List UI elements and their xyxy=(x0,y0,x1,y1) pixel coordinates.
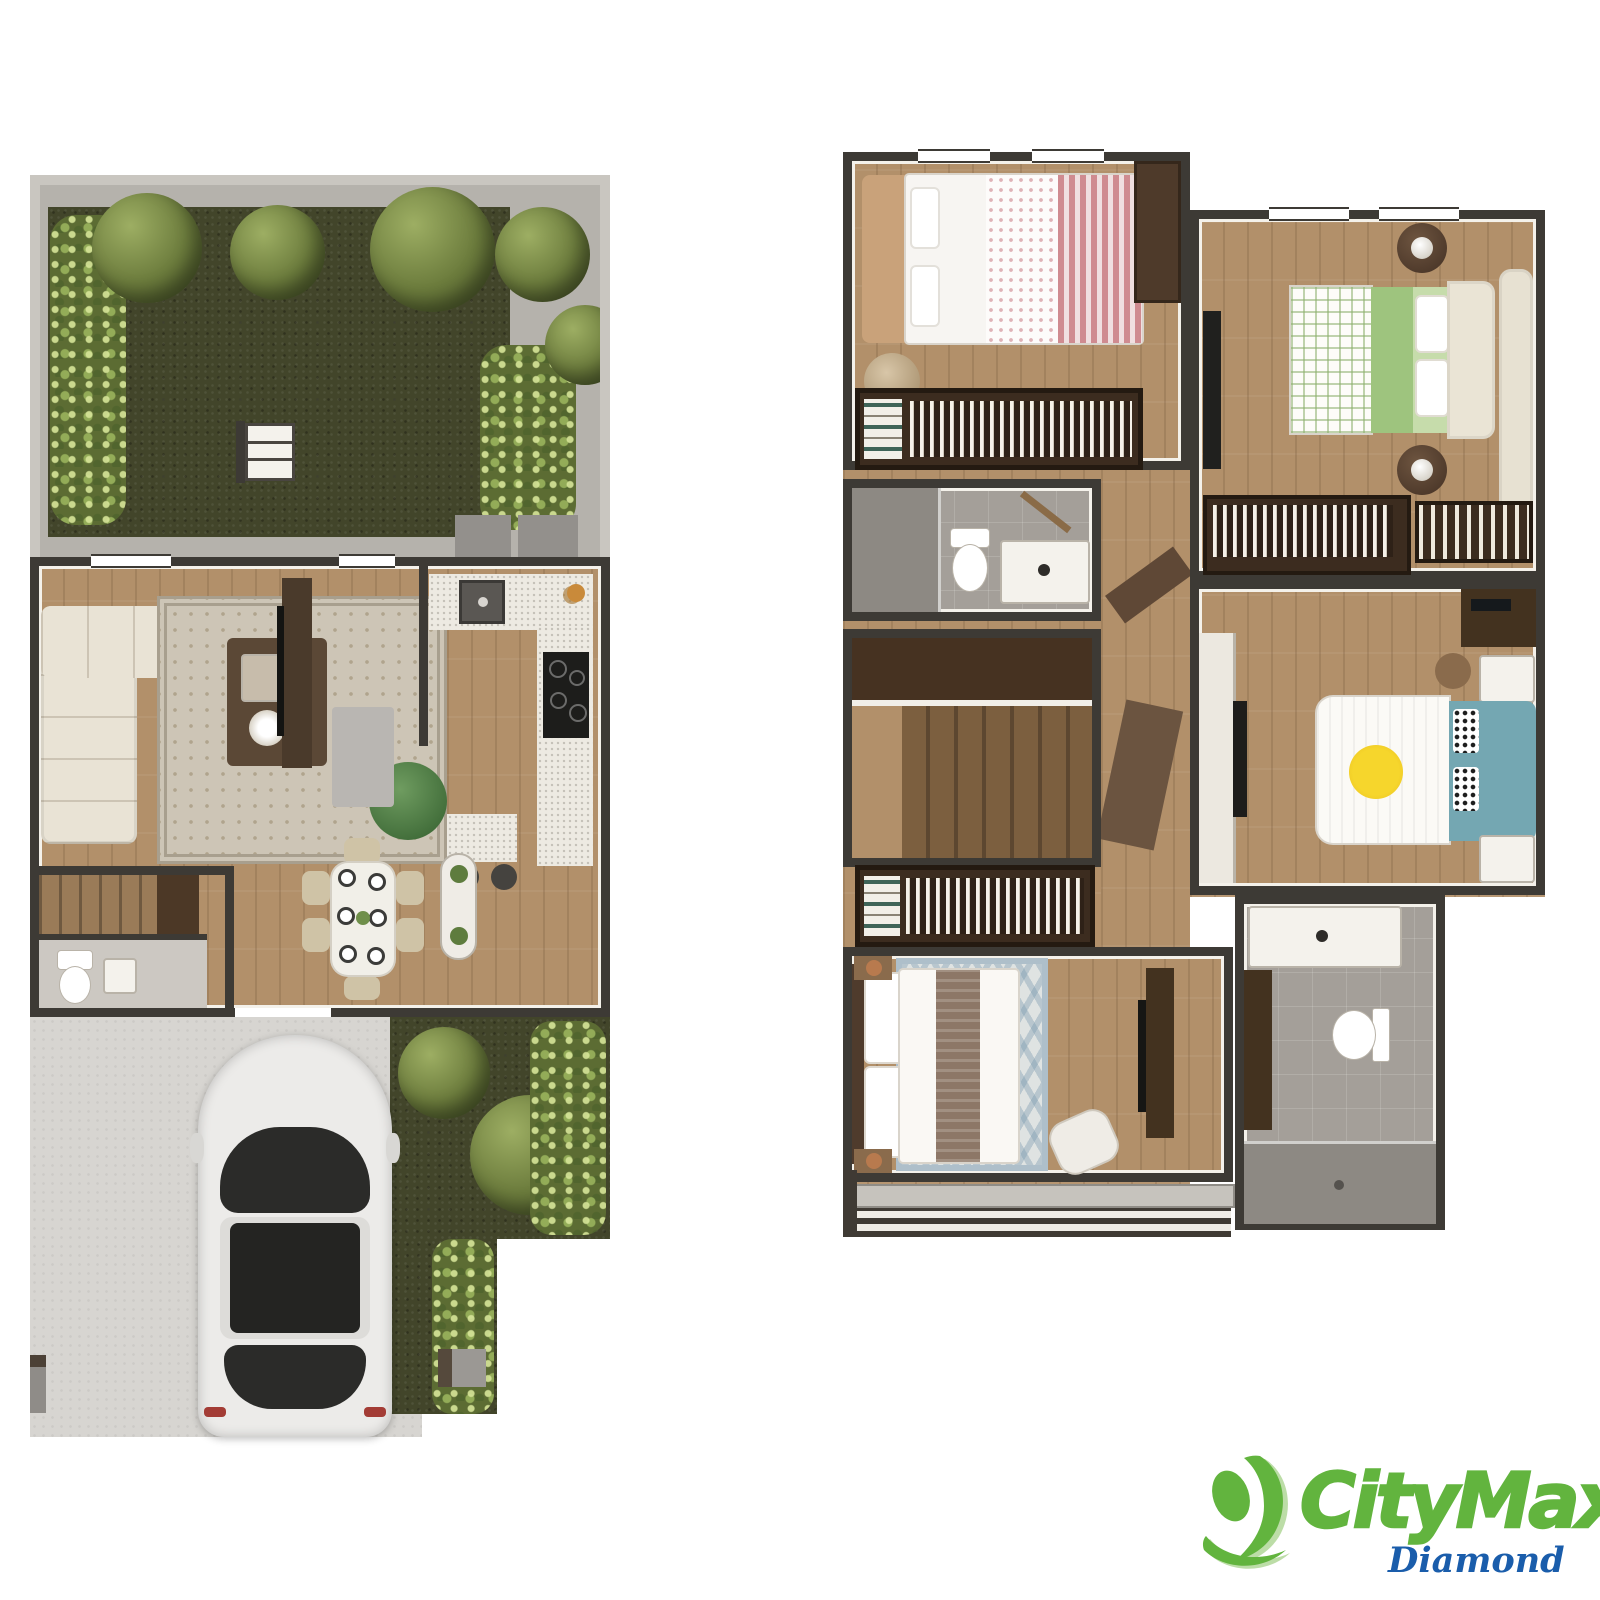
car-taillight xyxy=(364,1407,386,1417)
plant xyxy=(450,927,468,945)
tv-wall xyxy=(1199,633,1236,883)
pillow xyxy=(864,972,904,1064)
hall-wall xyxy=(225,866,234,1008)
lamp xyxy=(1411,237,1433,259)
lamp xyxy=(1411,459,1433,481)
pillow xyxy=(1415,295,1449,353)
pillow xyxy=(1415,359,1449,417)
post xyxy=(438,1349,486,1387)
dining-table xyxy=(332,863,394,975)
citymax-logo: CityMax® Diamond xyxy=(1180,1448,1560,1598)
nightstand xyxy=(854,956,892,980)
hanging-clothes xyxy=(1213,505,1393,557)
plate xyxy=(339,945,357,963)
car-windshield xyxy=(220,1127,370,1213)
patterned-pillow xyxy=(1453,709,1479,753)
master-bedroom xyxy=(843,947,1233,1182)
round-nightstand xyxy=(1397,223,1447,273)
garden xyxy=(30,175,610,567)
stairs xyxy=(902,706,1092,858)
closet-1 xyxy=(855,388,1143,470)
faucet xyxy=(1316,930,1328,942)
stairwell xyxy=(843,629,1101,867)
balcony xyxy=(843,1184,1235,1237)
copper-lamp xyxy=(866,960,882,976)
burner xyxy=(569,704,587,722)
faucet xyxy=(1038,564,1050,576)
closet-2 xyxy=(1203,495,1411,575)
car-mirror xyxy=(190,1133,204,1163)
plate xyxy=(368,873,386,891)
desk-chair xyxy=(1435,653,1471,689)
sub-brand: Diamond xyxy=(1388,1540,1565,1581)
corner-post xyxy=(843,1170,857,1237)
car-sunroof xyxy=(230,1223,360,1333)
kitchen-counter xyxy=(429,574,593,630)
tv xyxy=(1203,311,1221,469)
shower xyxy=(1244,1141,1436,1224)
patterned-pillow xyxy=(1453,767,1479,811)
plate xyxy=(338,869,356,887)
toilet xyxy=(59,966,91,1004)
balcony-louvers xyxy=(847,1208,1231,1237)
car-roof xyxy=(220,1217,370,1339)
stair-landing xyxy=(852,706,902,858)
shelf-unit xyxy=(1415,501,1533,563)
toilet xyxy=(952,544,988,592)
bedroom-2 xyxy=(1190,210,1545,580)
first-floor-plan xyxy=(30,175,610,1437)
hanging-clothes xyxy=(910,401,1132,457)
entry-door-gap xyxy=(235,1008,331,1017)
burner xyxy=(550,692,567,709)
tv xyxy=(277,606,284,736)
hall-wall xyxy=(39,866,234,875)
plant-console xyxy=(440,853,477,960)
green-blanket xyxy=(1371,287,1413,433)
hedge xyxy=(530,1021,606,1235)
window xyxy=(339,556,395,566)
nightstand xyxy=(1479,835,1535,883)
car-taillight xyxy=(204,1407,226,1417)
citymax-swoosh-icon xyxy=(1198,1454,1302,1576)
second-floor-plan xyxy=(843,152,1545,1237)
window xyxy=(1269,209,1349,219)
headboard xyxy=(1447,281,1495,439)
teal-headboard xyxy=(1449,701,1536,841)
bedroom-3 xyxy=(1190,580,1545,895)
towel-stack xyxy=(864,399,902,459)
dining-chair xyxy=(302,918,330,952)
logo-wordmark: CityMax® xyxy=(1300,1456,1600,1545)
headboard xyxy=(852,964,864,1164)
car-rear-window xyxy=(224,1345,366,1409)
kitchen-sink xyxy=(459,580,505,624)
centerpiece xyxy=(356,911,370,925)
garden-shelf xyxy=(245,423,295,481)
patio-door xyxy=(91,556,171,566)
plate xyxy=(367,947,385,965)
faucet xyxy=(478,597,488,607)
copper-lamp xyxy=(866,1153,882,1169)
plant xyxy=(450,865,468,883)
half-bathroom xyxy=(39,940,207,1008)
tv-console xyxy=(1146,968,1174,1138)
window xyxy=(1032,151,1104,161)
dining-chair xyxy=(396,871,424,905)
tv-console xyxy=(282,578,312,768)
vanity xyxy=(1000,540,1090,604)
burner xyxy=(549,660,567,678)
ground-floor-interior xyxy=(30,557,610,1017)
desk xyxy=(1461,589,1536,647)
dining-chair xyxy=(344,838,380,864)
master-closet xyxy=(855,865,1095,947)
lower-hedge xyxy=(432,1239,494,1414)
hall-dresser xyxy=(1097,700,1183,851)
towel-stack xyxy=(864,876,900,936)
hall-bench xyxy=(1105,547,1193,624)
pillow xyxy=(910,187,940,249)
plaid-duvet xyxy=(1291,287,1371,433)
pillow xyxy=(864,1066,904,1158)
balcony-sill xyxy=(843,1184,1235,1208)
sun-duvet-bed xyxy=(1317,697,1449,843)
polka-blanket xyxy=(986,175,1058,343)
stove xyxy=(543,652,589,738)
master-bathroom xyxy=(1235,895,1445,1230)
pillow xyxy=(910,265,940,327)
door-leaf xyxy=(1020,491,1072,533)
dining-chair xyxy=(396,918,424,952)
nightstand xyxy=(1479,655,1535,703)
round-nightstand xyxy=(1397,445,1447,495)
shower xyxy=(852,488,941,612)
monitor xyxy=(1471,599,1511,611)
tree xyxy=(495,207,590,302)
headboard xyxy=(862,175,906,343)
drain xyxy=(1334,1180,1344,1190)
burner xyxy=(569,670,585,686)
striped-blanket xyxy=(1058,175,1142,343)
stair-landing xyxy=(157,875,199,935)
hanging-clothes xyxy=(906,878,1084,934)
nightstand xyxy=(854,1149,892,1173)
floor-plan-sheet: CityMax® Diamond xyxy=(0,0,1600,1600)
window xyxy=(918,151,990,161)
wall-stub xyxy=(236,421,245,483)
bed-runner xyxy=(936,970,980,1162)
car xyxy=(198,1035,392,1437)
bush xyxy=(398,1027,490,1119)
hand-sink xyxy=(103,958,137,994)
tree xyxy=(92,193,202,303)
vanity xyxy=(1248,906,1402,968)
tree xyxy=(230,205,325,300)
reading-chair xyxy=(1043,1103,1124,1180)
toilet xyxy=(1332,1010,1376,1060)
dining-chair xyxy=(344,976,380,1000)
plate xyxy=(369,909,387,927)
bar-stool xyxy=(491,864,517,890)
logo-text: CityMax xyxy=(1300,1456,1600,1545)
kitchen-wall xyxy=(419,566,428,746)
plate xyxy=(337,907,355,925)
wardrobe xyxy=(1134,161,1181,303)
window xyxy=(1379,209,1459,219)
tree xyxy=(370,187,495,312)
tv xyxy=(1233,701,1247,817)
bath-cabinet xyxy=(1244,970,1272,1130)
bathroom-1 xyxy=(843,479,1101,621)
ottoman xyxy=(332,707,394,807)
post xyxy=(30,1355,46,1413)
stair-void xyxy=(852,638,1092,700)
car-mirror xyxy=(386,1133,400,1163)
fruit-bowl xyxy=(567,584,585,602)
tv xyxy=(1138,1000,1146,1112)
dining-chair xyxy=(302,871,330,905)
sun-motif xyxy=(1349,745,1403,799)
